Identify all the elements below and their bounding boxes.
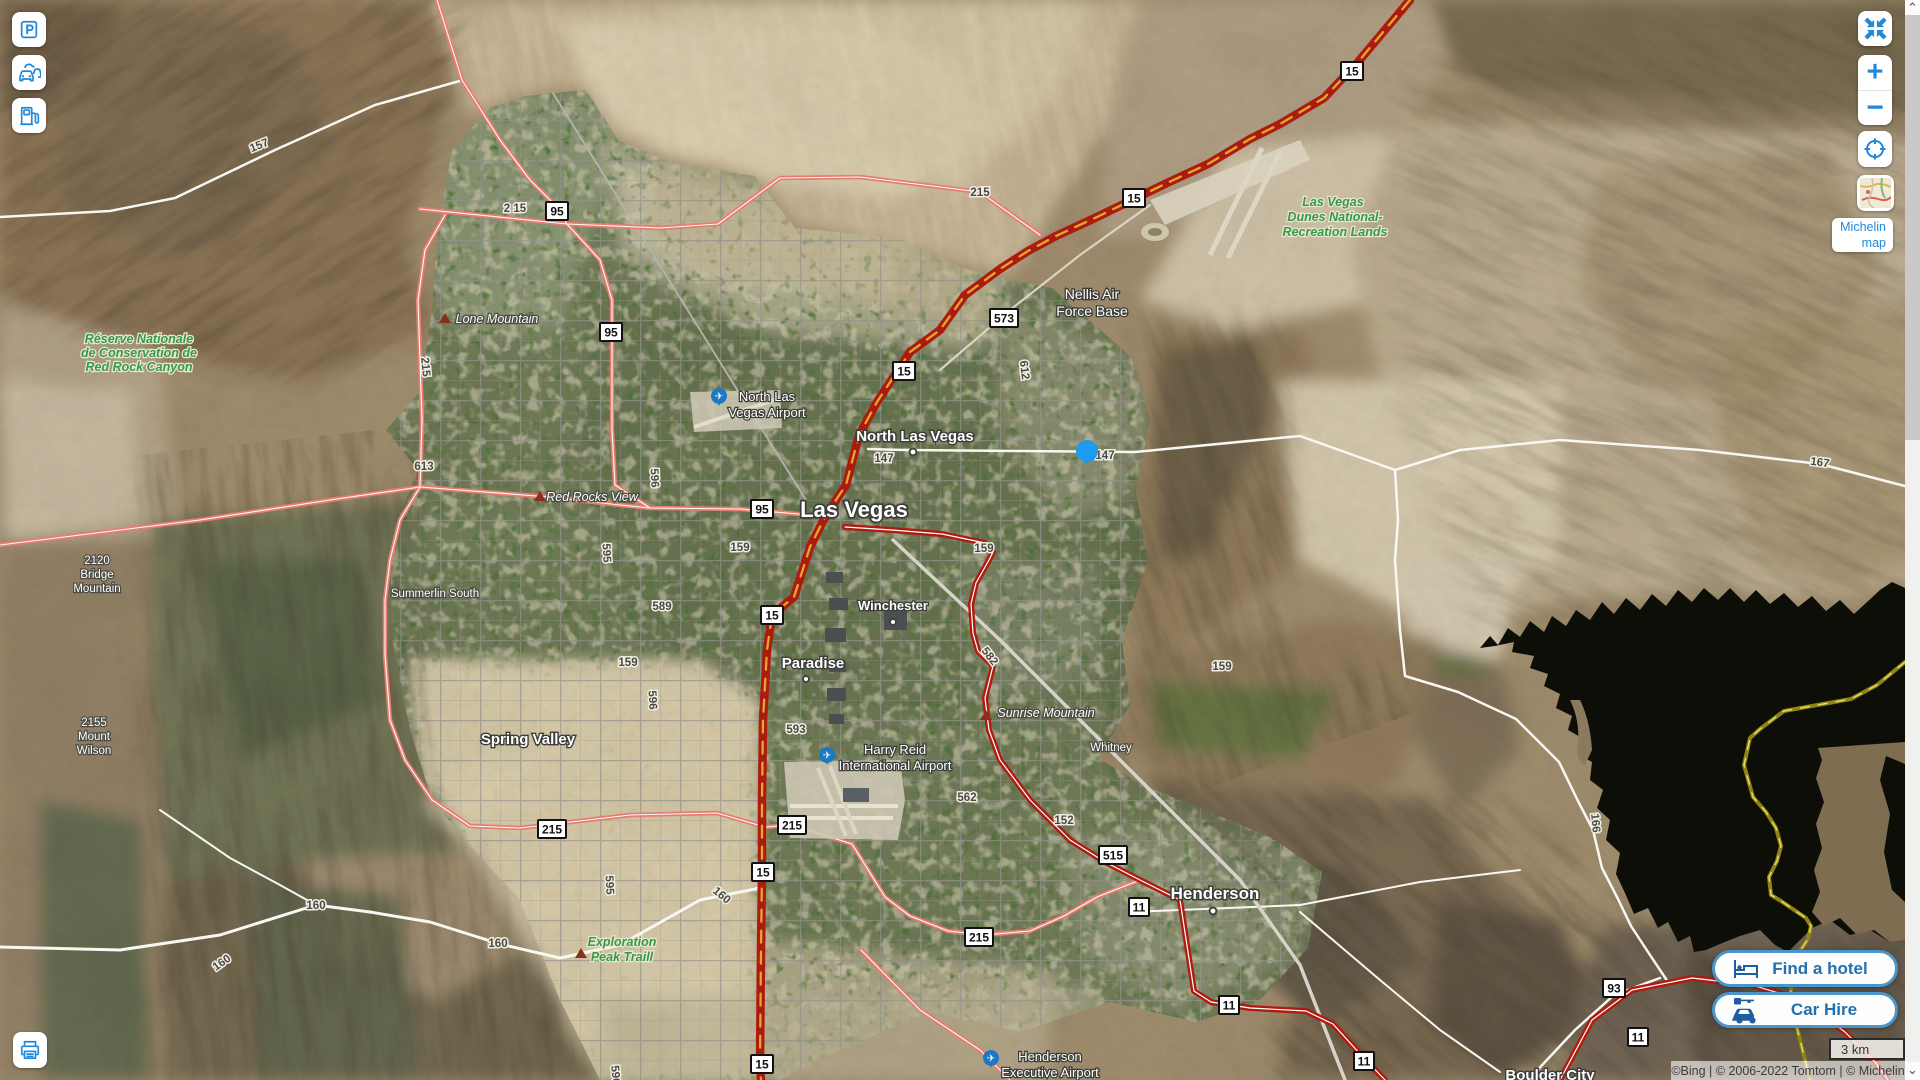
svg-text:15: 15 — [1345, 65, 1359, 79]
svg-text:✈: ✈ — [715, 392, 723, 403]
svg-text:11: 11 — [1223, 999, 1236, 1013]
svg-text:Réserve Nationale: Réserve Nationale — [85, 332, 193, 346]
svg-text:✈: ✈ — [987, 1054, 995, 1065]
svg-text:159: 159 — [730, 542, 749, 554]
svg-text:159: 159 — [618, 657, 637, 669]
svg-text:Winchester: Winchester — [858, 598, 928, 613]
svg-text:Las Vegas: Las Vegas — [800, 497, 908, 522]
svg-text:11: 11 — [1358, 1055, 1371, 1069]
svg-text:Paradise: Paradise — [782, 655, 845, 672]
svg-text:Vegas Airport: Vegas Airport — [728, 405, 806, 420]
svg-text:Recreation Lands: Recreation Lands — [1283, 225, 1388, 239]
svg-text:15: 15 — [1127, 192, 1141, 206]
svg-text:Exploration: Exploration — [588, 935, 657, 949]
svg-text:Summerlin South: Summerlin South — [391, 588, 479, 600]
svg-text:Nellis Air: Nellis Air — [1065, 286, 1120, 302]
svg-text:95: 95 — [550, 205, 564, 219]
svg-text:2120: 2120 — [84, 555, 110, 567]
svg-text:215: 215 — [418, 357, 432, 378]
svg-text:Harry Reid: Harry Reid — [864, 742, 926, 757]
svg-text:515: 515 — [1103, 849, 1123, 863]
svg-text:595: 595 — [600, 543, 613, 563]
svg-text:573: 573 — [994, 312, 1014, 326]
svg-text:15: 15 — [765, 609, 779, 623]
svg-text:215: 215 — [970, 187, 990, 199]
svg-text:Mount: Mount — [78, 731, 111, 743]
svg-text:160: 160 — [306, 900, 325, 912]
svg-text:147: 147 — [1095, 450, 1114, 462]
svg-text:596: 596 — [608, 1065, 622, 1080]
svg-text:Whitney: Whitney — [1090, 742, 1132, 754]
svg-text:562: 562 — [957, 792, 976, 804]
svg-text:Spring Valley: Spring Valley — [481, 731, 576, 748]
svg-text:11: 11 — [1133, 901, 1146, 915]
svg-text:Red Rocks View: Red Rocks View — [546, 490, 638, 504]
svg-text:Lone Mountain: Lone Mountain — [456, 312, 539, 326]
svg-text:Wilson: Wilson — [77, 745, 112, 757]
svg-text:215: 215 — [782, 819, 802, 833]
svg-text:Mountain: Mountain — [73, 583, 120, 595]
svg-text:593: 593 — [786, 724, 805, 736]
svg-text:Henderson: Henderson — [1018, 1049, 1082, 1064]
svg-text:Executive Airport: Executive Airport — [1001, 1065, 1099, 1080]
svg-text:152: 152 — [1054, 815, 1073, 827]
svg-text:Las Vegas: Las Vegas — [1302, 195, 1363, 209]
svg-text:Sunrise Mountain: Sunrise Mountain — [997, 706, 1094, 720]
svg-text:159: 159 — [974, 543, 993, 555]
svg-text:589: 589 — [652, 601, 671, 613]
svg-text:2155: 2155 — [81, 717, 107, 729]
svg-text:International Airport: International Airport — [839, 758, 952, 773]
svg-text:Henderson: Henderson — [1171, 884, 1260, 903]
svg-text:612: 612 — [1017, 360, 1031, 381]
svg-text:596: 596 — [646, 690, 659, 710]
svg-text:✈: ✈ — [823, 751, 831, 762]
svg-text:15: 15 — [756, 866, 770, 880]
svg-text:95: 95 — [755, 503, 769, 517]
svg-text:159: 159 — [1212, 661, 1231, 673]
svg-text:Boulder City: Boulder City — [1505, 1067, 1595, 1080]
svg-text:93: 93 — [1607, 982, 1621, 996]
svg-text:147: 147 — [874, 453, 893, 465]
svg-text:Bridge: Bridge — [80, 569, 113, 581]
svg-text:15: 15 — [755, 1058, 769, 1072]
svg-text:160: 160 — [488, 938, 507, 950]
svg-text:596: 596 — [648, 468, 661, 488]
svg-text:North Las: North Las — [739, 389, 796, 404]
svg-text:North Las Vegas: North Las Vegas — [856, 428, 974, 445]
svg-text:15: 15 — [897, 365, 911, 379]
svg-text:Red Rock Canyon: Red Rock Canyon — [86, 360, 193, 374]
svg-text:2 15: 2 15 — [504, 203, 527, 215]
svg-text:11: 11 — [1632, 1031, 1645, 1045]
svg-text:Dunes National-: Dunes National- — [1287, 210, 1382, 224]
svg-text:166: 166 — [1588, 813, 1602, 833]
svg-text:95: 95 — [604, 326, 618, 340]
svg-text:595: 595 — [603, 875, 616, 895]
svg-text:de Conservation de: de Conservation de — [81, 346, 197, 360]
svg-text:Force Base: Force Base — [1056, 303, 1128, 319]
svg-text:613: 613 — [414, 461, 433, 473]
svg-text:215: 215 — [969, 931, 989, 945]
svg-text:215: 215 — [542, 823, 562, 837]
svg-text:Peak Traill: Peak Traill — [591, 950, 654, 964]
